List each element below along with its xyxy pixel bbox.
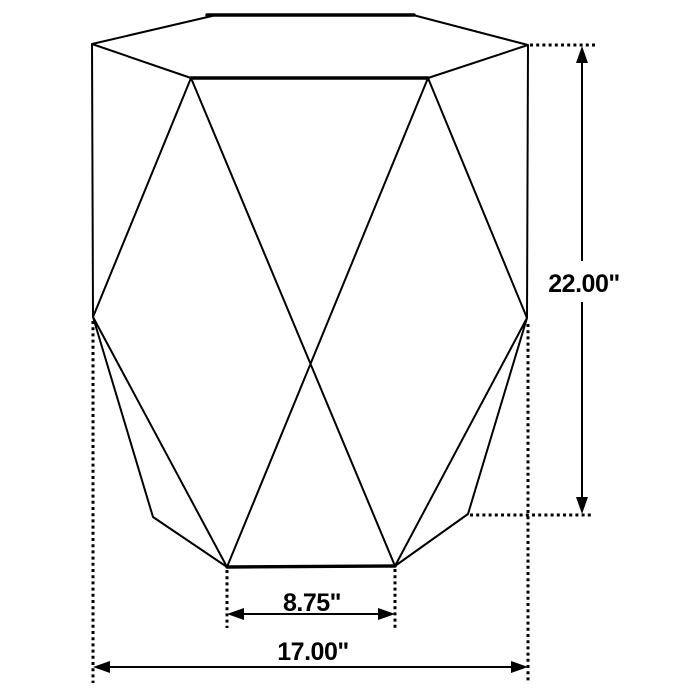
table-line-drawing: 22.00" 8.75" 17.00" (0, 0, 700, 700)
height-dimension-label: 22.00" (548, 270, 619, 298)
extension-lines (93, 45, 595, 683)
arrowhead-right-icon (511, 661, 528, 673)
arrowhead-up-icon (576, 46, 588, 63)
base-width-dimension-label: 8.75" (283, 589, 341, 617)
dimension-diagram: 22.00" 8.75" 17.00" (0, 0, 700, 700)
arrowhead-right-icon (378, 608, 395, 620)
overall-width-dimension-line: 17.00" (93, 638, 528, 673)
base-width-dimension-line: 8.75" (227, 589, 395, 620)
table-emphasized-edges (191, 15, 428, 567)
arrowhead-left-icon (227, 608, 244, 620)
height-dimension-line: 22.00" (548, 46, 619, 514)
overall-width-dimension-label: 17.00" (277, 638, 348, 666)
arrowhead-left-icon (93, 661, 110, 673)
table-facet-edges (92, 15, 528, 567)
arrowhead-down-icon (576, 497, 588, 514)
